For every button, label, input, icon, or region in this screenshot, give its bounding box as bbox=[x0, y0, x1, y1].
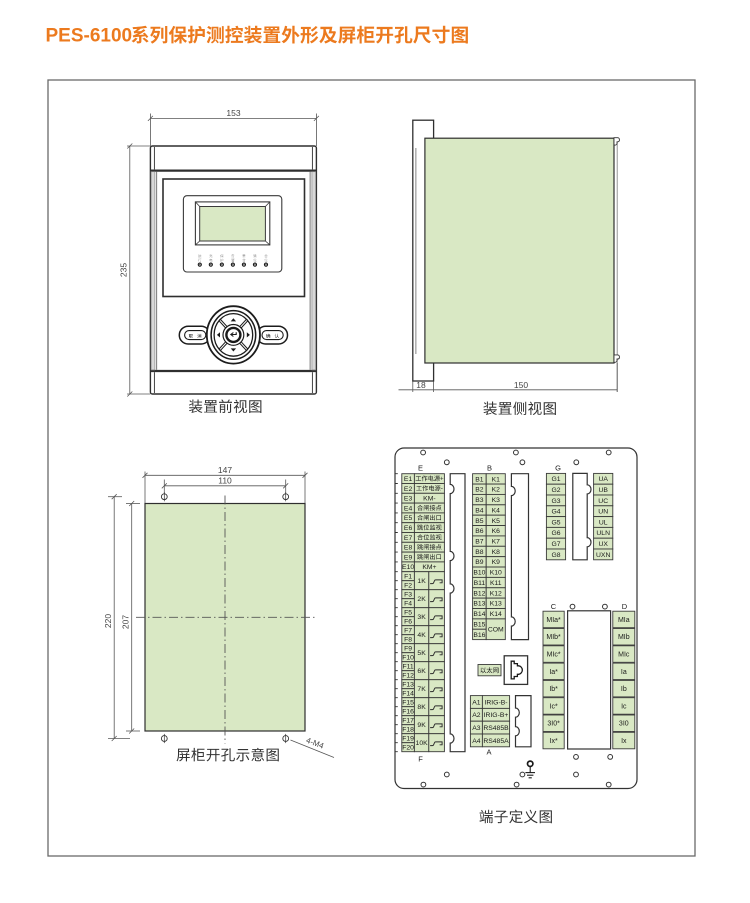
svg-text:Ic: Ic bbox=[621, 703, 627, 710]
svg-text:235: 235 bbox=[119, 263, 129, 277]
svg-text:150: 150 bbox=[514, 380, 528, 390]
svg-text:2K: 2K bbox=[417, 596, 426, 603]
svg-text:6K: 6K bbox=[417, 668, 426, 675]
svg-text:B6: B6 bbox=[475, 528, 484, 535]
svg-text:Ix: Ix bbox=[621, 738, 627, 745]
svg-text:G8: G8 bbox=[551, 552, 560, 559]
svg-text:3I0: 3I0 bbox=[619, 721, 629, 728]
svg-text:F13: F13 bbox=[402, 682, 414, 689]
svg-text:K3: K3 bbox=[492, 497, 501, 504]
svg-text:E: E bbox=[418, 463, 423, 472]
svg-text:K14: K14 bbox=[490, 611, 502, 618]
svg-text:UN: UN bbox=[598, 509, 608, 516]
svg-text:A: A bbox=[486, 748, 491, 757]
svg-text:G3: G3 bbox=[551, 498, 560, 505]
svg-text:UB: UB bbox=[598, 487, 608, 494]
svg-text:G2: G2 bbox=[551, 487, 560, 494]
svg-text:F17: F17 bbox=[402, 718, 414, 725]
svg-text:UL: UL bbox=[599, 519, 608, 526]
svg-text:K1: K1 bbox=[492, 476, 501, 483]
svg-text:10K: 10K bbox=[416, 740, 429, 747]
svg-text:PES-6100: PES-6100 bbox=[46, 26, 133, 47]
svg-text:G1: G1 bbox=[551, 476, 560, 483]
svg-text:D: D bbox=[622, 602, 628, 611]
svg-text:K4: K4 bbox=[492, 507, 501, 514]
svg-text:E9: E9 bbox=[404, 554, 413, 561]
svg-text:F4: F4 bbox=[404, 601, 412, 608]
svg-text:F: F bbox=[418, 755, 423, 764]
svg-text:B3: B3 bbox=[475, 497, 484, 504]
svg-text:B4: B4 bbox=[475, 507, 484, 514]
svg-text:1K: 1K bbox=[417, 578, 426, 585]
svg-text:K12: K12 bbox=[490, 590, 502, 597]
svg-text:Ix*: Ix* bbox=[550, 738, 558, 745]
svg-text:F20: F20 bbox=[402, 745, 414, 752]
svg-text:KM+: KM+ bbox=[422, 564, 436, 571]
svg-text:110: 110 bbox=[218, 475, 232, 485]
svg-text:K9: K9 bbox=[492, 559, 501, 566]
svg-text:B8: B8 bbox=[475, 549, 484, 556]
svg-text:F14: F14 bbox=[402, 691, 414, 698]
svg-text:Ia*: Ia* bbox=[549, 669, 558, 676]
svg-text:G: G bbox=[555, 463, 561, 472]
svg-text:B2: B2 bbox=[475, 487, 484, 494]
svg-text:E4: E4 bbox=[404, 505, 413, 512]
svg-text:F3: F3 bbox=[404, 592, 412, 599]
svg-text:C: C bbox=[551, 602, 557, 611]
svg-text:MIa*: MIa* bbox=[546, 617, 561, 624]
svg-text:MIb*: MIb* bbox=[546, 634, 561, 641]
svg-text:E3: E3 bbox=[404, 496, 413, 503]
svg-text:UX: UX bbox=[598, 541, 608, 548]
svg-text:MIb: MIb bbox=[618, 634, 630, 641]
svg-text:5K: 5K bbox=[417, 650, 426, 657]
svg-text:18: 18 bbox=[416, 380, 426, 390]
svg-text:B5: B5 bbox=[475, 518, 484, 525]
svg-text:F9: F9 bbox=[404, 646, 412, 653]
svg-text:E6: E6 bbox=[404, 525, 413, 532]
svg-text:B12: B12 bbox=[473, 590, 485, 597]
svg-text:G4: G4 bbox=[551, 509, 560, 516]
svg-text:A2: A2 bbox=[472, 712, 481, 719]
svg-text:IRIG-B-: IRIG-B- bbox=[484, 699, 507, 706]
svg-text:G5: G5 bbox=[551, 519, 560, 526]
svg-text:F19: F19 bbox=[402, 736, 414, 743]
svg-text:B10: B10 bbox=[473, 570, 485, 577]
svg-text:F16: F16 bbox=[402, 709, 414, 716]
svg-text:B13: B13 bbox=[473, 601, 485, 608]
svg-text:8K: 8K bbox=[417, 704, 426, 711]
svg-text:K6: K6 bbox=[492, 528, 501, 535]
svg-text:B9: B9 bbox=[475, 559, 484, 566]
svg-text:A4: A4 bbox=[472, 738, 481, 745]
svg-text:K13: K13 bbox=[490, 601, 502, 608]
svg-text:220: 220 bbox=[103, 614, 113, 628]
svg-text:F15: F15 bbox=[402, 700, 414, 707]
svg-text:147: 147 bbox=[218, 465, 232, 475]
svg-text:E1: E1 bbox=[404, 476, 413, 483]
svg-text:K7: K7 bbox=[492, 539, 501, 546]
svg-text:A3: A3 bbox=[472, 725, 481, 732]
svg-text:153: 153 bbox=[226, 108, 240, 118]
svg-text:RS485B: RS485B bbox=[483, 725, 509, 732]
svg-text:E2: E2 bbox=[404, 486, 413, 493]
svg-text:MIc*: MIc* bbox=[547, 651, 561, 658]
svg-text:MIc: MIc bbox=[618, 651, 630, 658]
svg-text:K10: K10 bbox=[490, 570, 502, 577]
svg-text:E8: E8 bbox=[404, 545, 413, 552]
svg-text:F11: F11 bbox=[402, 664, 413, 671]
svg-text:UA: UA bbox=[598, 476, 608, 483]
svg-text:ULN: ULN bbox=[596, 530, 610, 537]
svg-text:F7: F7 bbox=[404, 628, 412, 635]
svg-text:F8: F8 bbox=[404, 637, 412, 644]
svg-text:K8: K8 bbox=[492, 549, 501, 556]
svg-text:F6: F6 bbox=[404, 619, 412, 626]
svg-text:G6: G6 bbox=[551, 530, 560, 537]
svg-text:K2: K2 bbox=[492, 487, 501, 494]
svg-text:KM-: KM- bbox=[423, 496, 435, 503]
svg-text:F10: F10 bbox=[402, 655, 414, 662]
svg-text:A1: A1 bbox=[472, 699, 481, 706]
svg-text:B15: B15 bbox=[473, 621, 485, 628]
svg-text:E10: E10 bbox=[402, 564, 414, 571]
svg-text:7K: 7K bbox=[417, 686, 426, 693]
svg-text:F12: F12 bbox=[402, 673, 414, 680]
svg-text:Ia: Ia bbox=[621, 669, 627, 676]
svg-text:COM: COM bbox=[488, 627, 504, 634]
svg-text:B7: B7 bbox=[475, 539, 484, 546]
svg-text:4K: 4K bbox=[417, 632, 426, 639]
svg-text:E5: E5 bbox=[404, 515, 413, 522]
svg-text:UC: UC bbox=[598, 498, 608, 505]
svg-text:3K: 3K bbox=[417, 614, 426, 621]
svg-text:RS485A: RS485A bbox=[483, 738, 509, 745]
svg-text:207: 207 bbox=[121, 615, 131, 629]
svg-text:E7: E7 bbox=[404, 535, 413, 542]
svg-text:K11: K11 bbox=[490, 580, 502, 587]
svg-text:B11: B11 bbox=[474, 580, 486, 587]
svg-text:F18: F18 bbox=[402, 727, 414, 734]
svg-text:B: B bbox=[487, 463, 492, 472]
svg-text:Ic*: Ic* bbox=[550, 703, 558, 710]
svg-text:F5: F5 bbox=[404, 610, 412, 617]
svg-text:B1: B1 bbox=[475, 476, 484, 483]
svg-text:3I0*: 3I0* bbox=[547, 721, 560, 728]
svg-text:F1: F1 bbox=[404, 574, 412, 581]
svg-text:F2: F2 bbox=[404, 583, 412, 590]
svg-text:IRIG-B+: IRIG-B+ bbox=[484, 712, 509, 719]
svg-text:Ib*: Ib* bbox=[549, 686, 558, 693]
svg-text:G7: G7 bbox=[551, 541, 560, 548]
svg-text:UXN: UXN bbox=[596, 552, 610, 559]
svg-text:B14: B14 bbox=[473, 611, 485, 618]
svg-text:9K: 9K bbox=[417, 722, 426, 729]
svg-text:MIa: MIa bbox=[618, 617, 630, 624]
svg-text:Ib: Ib bbox=[621, 686, 627, 693]
svg-text:B16: B16 bbox=[473, 632, 485, 639]
svg-text:K5: K5 bbox=[492, 518, 501, 525]
